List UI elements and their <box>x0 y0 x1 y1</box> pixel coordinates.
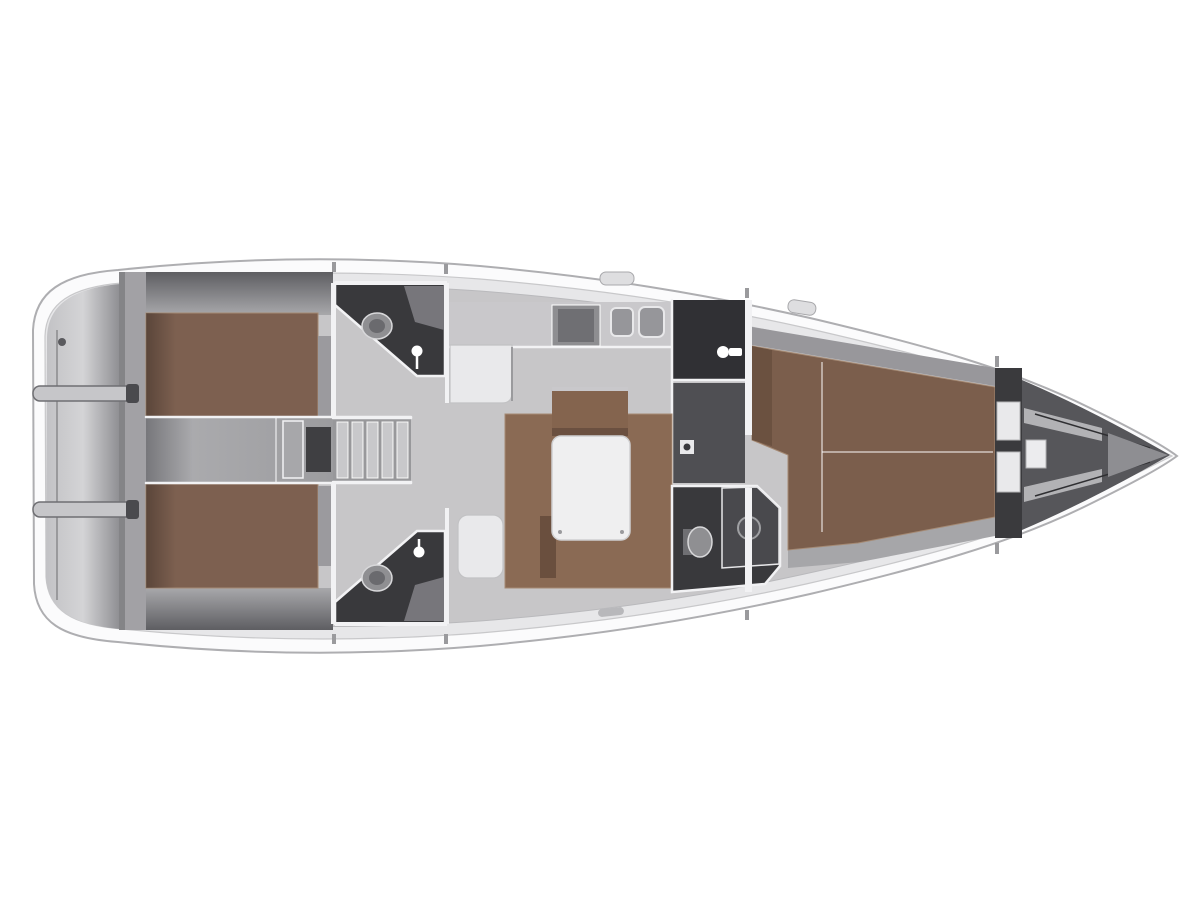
door-handle-knob <box>684 444 691 451</box>
step-tread <box>352 422 363 478</box>
wall <box>331 483 336 624</box>
hull-tick <box>745 288 749 298</box>
berth-shadow <box>146 313 176 417</box>
berth-headboard <box>752 346 772 446</box>
shower-mixer-icon <box>414 547 425 558</box>
lazarette-shadow <box>119 272 125 630</box>
stern-area <box>33 272 146 630</box>
hull-side-shading-port <box>146 272 333 315</box>
hull-tick <box>332 262 336 272</box>
backrest-seam <box>552 428 628 436</box>
nav-seat <box>458 515 503 578</box>
berth-side-step <box>318 336 332 416</box>
shower-mixer-icon <box>412 346 423 357</box>
step-tread <box>337 422 348 478</box>
bow-area <box>995 368 1170 538</box>
deck-fitting <box>58 338 66 346</box>
sink-icon <box>639 307 664 337</box>
step-tread <box>367 422 378 478</box>
berth-shadow <box>146 484 176 588</box>
forward-cabin <box>752 327 995 568</box>
faucet-icon <box>717 346 729 358</box>
wall <box>335 622 447 626</box>
toilet-bowl <box>369 319 385 333</box>
floor-plan-drawing <box>0 0 1200 900</box>
hull-tick <box>444 634 448 644</box>
step-tread <box>382 422 393 478</box>
sink-icon <box>611 308 633 336</box>
step-tread <box>397 422 408 478</box>
wardrobe <box>672 383 745 483</box>
wheel-pedestal <box>126 384 139 403</box>
berth-side-step <box>318 486 332 566</box>
forward-head <box>672 486 780 592</box>
table-leg <box>620 530 624 534</box>
steering-wheel-icon <box>33 386 133 401</box>
locker-column <box>672 300 745 483</box>
bulkhead-panel <box>997 402 1020 440</box>
galley-l-counter <box>450 345 512 403</box>
yacht-floor-plan <box>0 0 1200 900</box>
hull-tick <box>745 610 749 620</box>
companionway <box>333 418 411 482</box>
wheel-pedestal <box>126 500 139 519</box>
engine-hatch <box>306 427 331 472</box>
forward-cabin-bulkhead <box>745 300 752 435</box>
hull-tick <box>995 543 999 554</box>
engine-box <box>283 421 303 478</box>
forward-cabin-bulkhead <box>745 488 752 592</box>
wall <box>331 283 336 417</box>
wall <box>445 508 449 624</box>
steering-wheel-icon <box>33 502 133 517</box>
salon-table <box>552 436 630 540</box>
wall <box>335 281 447 285</box>
bow-locker-door <box>1026 440 1046 468</box>
toilet-icon <box>688 527 712 557</box>
deck-hatch <box>600 272 634 285</box>
table-leg <box>558 530 562 534</box>
toilet-bowl <box>369 571 385 585</box>
bulkhead-panel <box>997 452 1020 492</box>
wall <box>445 283 449 403</box>
stove-top <box>558 309 594 342</box>
engine-compartment <box>146 417 333 483</box>
hull-tick <box>332 634 336 644</box>
hull-side-shading-starboard <box>146 588 333 630</box>
hull-tick <box>444 264 448 274</box>
galley-tall-locker <box>672 300 745 380</box>
faucet-icon <box>729 348 742 356</box>
hull-tick <box>995 356 999 367</box>
backrest-top <box>552 387 628 391</box>
